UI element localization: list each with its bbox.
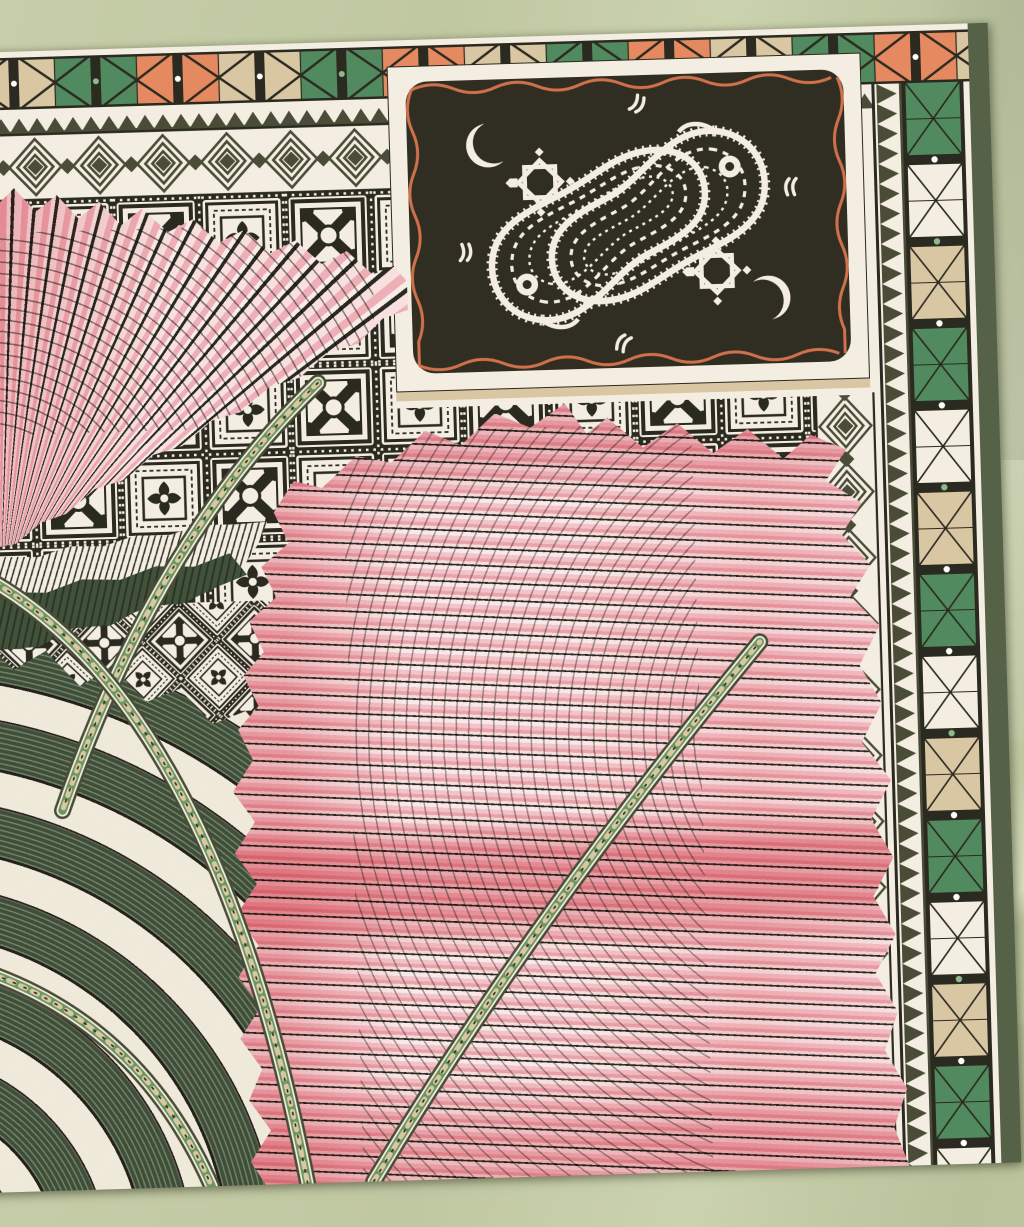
pleated-fan-center	[187, 394, 910, 1186]
paisley-panel	[387, 53, 871, 409]
panel-black-field	[405, 69, 851, 374]
fan-net-shading	[341, 423, 713, 1182]
silk-scarf	[0, 23, 1021, 1194]
